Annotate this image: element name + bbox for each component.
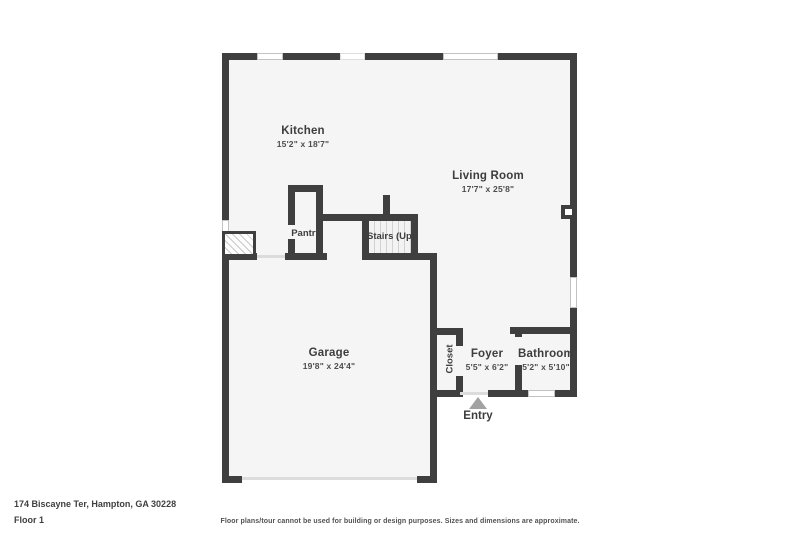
wall xyxy=(365,53,443,60)
window xyxy=(528,390,555,397)
door-opening xyxy=(257,255,285,258)
room-label-bathroom: Bathroom 5'2" x 5'10" xyxy=(518,348,574,372)
wall xyxy=(570,53,577,277)
hatched-feature xyxy=(222,231,256,257)
wall xyxy=(285,253,327,260)
wall xyxy=(555,390,577,397)
room-dims: 5'2" x 5'10" xyxy=(518,362,574,372)
room-name: Pantry xyxy=(291,228,321,239)
wall xyxy=(430,390,460,397)
entry-door-opening xyxy=(460,392,488,395)
disclaimer-text: Floor plans/tour cannot be used for buil… xyxy=(0,518,800,525)
window xyxy=(443,53,498,60)
room-label-closet: Closet xyxy=(445,344,456,373)
wall xyxy=(498,53,577,60)
room-label-kitchen: Kitchen 15'2" x 18'7" xyxy=(277,125,330,149)
window xyxy=(257,53,283,60)
room-dims: 19'8" x 24'4" xyxy=(303,361,356,371)
wall xyxy=(316,185,323,260)
room-name: Stairs (Up) xyxy=(367,231,415,242)
room-label-garage: Garage 19'8" x 24'4" xyxy=(303,347,356,371)
room-name: Foyer xyxy=(466,348,509,360)
room-label-pantry: Pantry xyxy=(291,228,321,239)
wall-fixture-notch xyxy=(565,209,572,215)
wall xyxy=(288,185,295,225)
window xyxy=(340,53,365,60)
entry-label: Entry xyxy=(463,410,492,422)
floorplan-canvas: Kitchen 15'2" x 18'7" Living Room 17'7" … xyxy=(0,0,800,533)
window xyxy=(570,277,577,308)
wall xyxy=(283,53,340,60)
wall xyxy=(430,253,437,483)
room-dims: 5'5" x 6'2" xyxy=(466,362,509,372)
room-label-stairs: Stairs (Up) xyxy=(367,231,415,242)
wall xyxy=(488,390,528,397)
wall xyxy=(417,476,437,483)
address-text: 174 Biscayne Ter, Hampton, GA 30228 xyxy=(14,499,176,509)
room-name: Living Room xyxy=(452,170,524,182)
room-dims: 17'7" x 25'8" xyxy=(452,184,524,194)
entry-arrow-icon xyxy=(469,397,487,409)
wall xyxy=(383,195,390,214)
room-label-living-room: Living Room 17'7" x 25'8" xyxy=(452,170,524,194)
wall xyxy=(456,328,463,346)
wall xyxy=(362,253,437,260)
wall xyxy=(222,234,229,483)
room-dims: 15'2" x 18'7" xyxy=(277,139,330,149)
wall xyxy=(515,327,522,337)
room-name: Garage xyxy=(303,347,356,359)
wall xyxy=(222,476,242,483)
room-label-foyer: Foyer 5'5" x 6'2" xyxy=(466,348,509,372)
wall xyxy=(222,53,229,220)
room-name: Kitchen xyxy=(277,125,330,137)
room-name: Bathroom xyxy=(518,348,574,360)
garage-door-opening xyxy=(242,477,417,480)
